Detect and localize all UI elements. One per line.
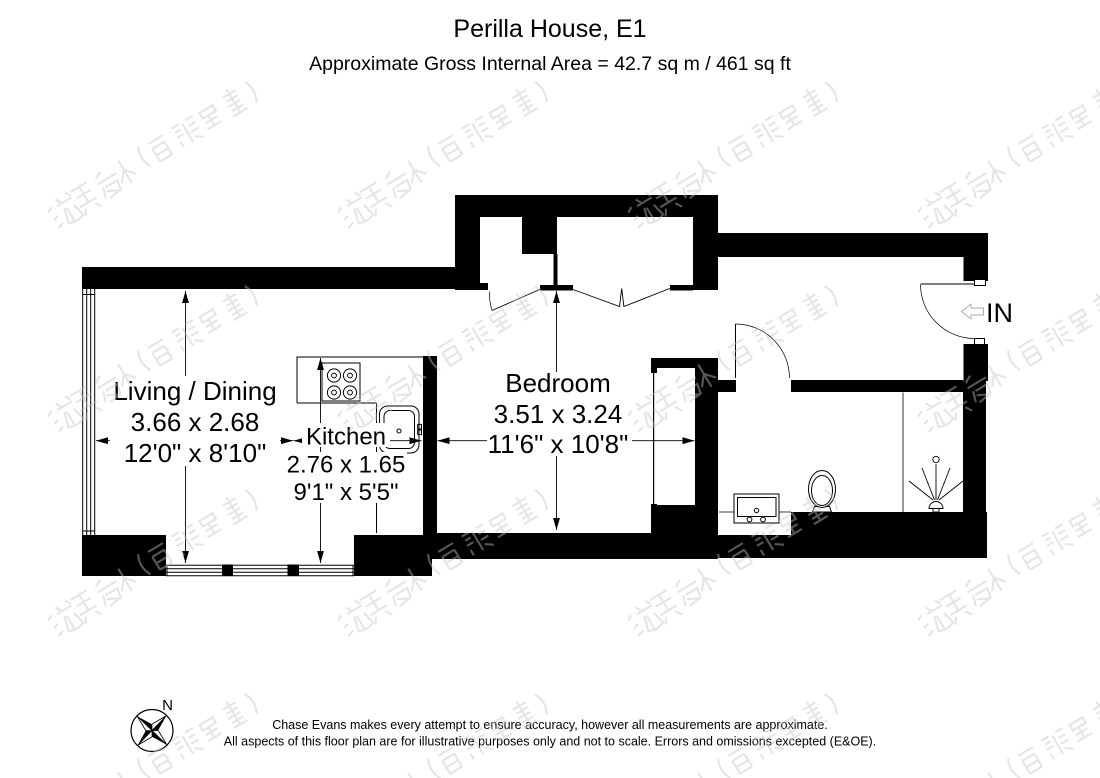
svg-text:Chase Evans makes every attemp: Chase Evans makes every attempt to ensur… (272, 718, 828, 732)
svg-text:2.76 x 1.65: 2.76 x 1.65 (287, 452, 406, 479)
svg-text:12'0" x 8'10": 12'0" x 8'10" (124, 438, 267, 468)
svg-text:Bedroom: Bedroom (505, 368, 611, 398)
svg-text:11'6" x 10'8": 11'6" x 10'8" (488, 429, 629, 459)
svg-text:IN: IN (986, 298, 1013, 328)
svg-text:Perilla House, E1: Perilla House, E1 (453, 15, 646, 43)
svg-text:All aspects of this floor plan: All aspects of this floor plan are for i… (224, 735, 876, 749)
svg-text:N: N (162, 697, 173, 714)
svg-text:3.66 x 2.68: 3.66 x 2.68 (131, 407, 260, 437)
svg-text:9'1" x 5'5": 9'1" x 5'5" (294, 479, 399, 506)
svg-text:Living / Dining: Living / Dining (113, 376, 276, 406)
svg-text:Approximate Gross Internal Are: Approximate Gross Internal Area = 42.7 s… (309, 53, 791, 75)
svg-text:3.51 x 3.24: 3.51 x 3.24 (494, 399, 623, 429)
svg-text:Kitchen: Kitchen (306, 424, 386, 451)
